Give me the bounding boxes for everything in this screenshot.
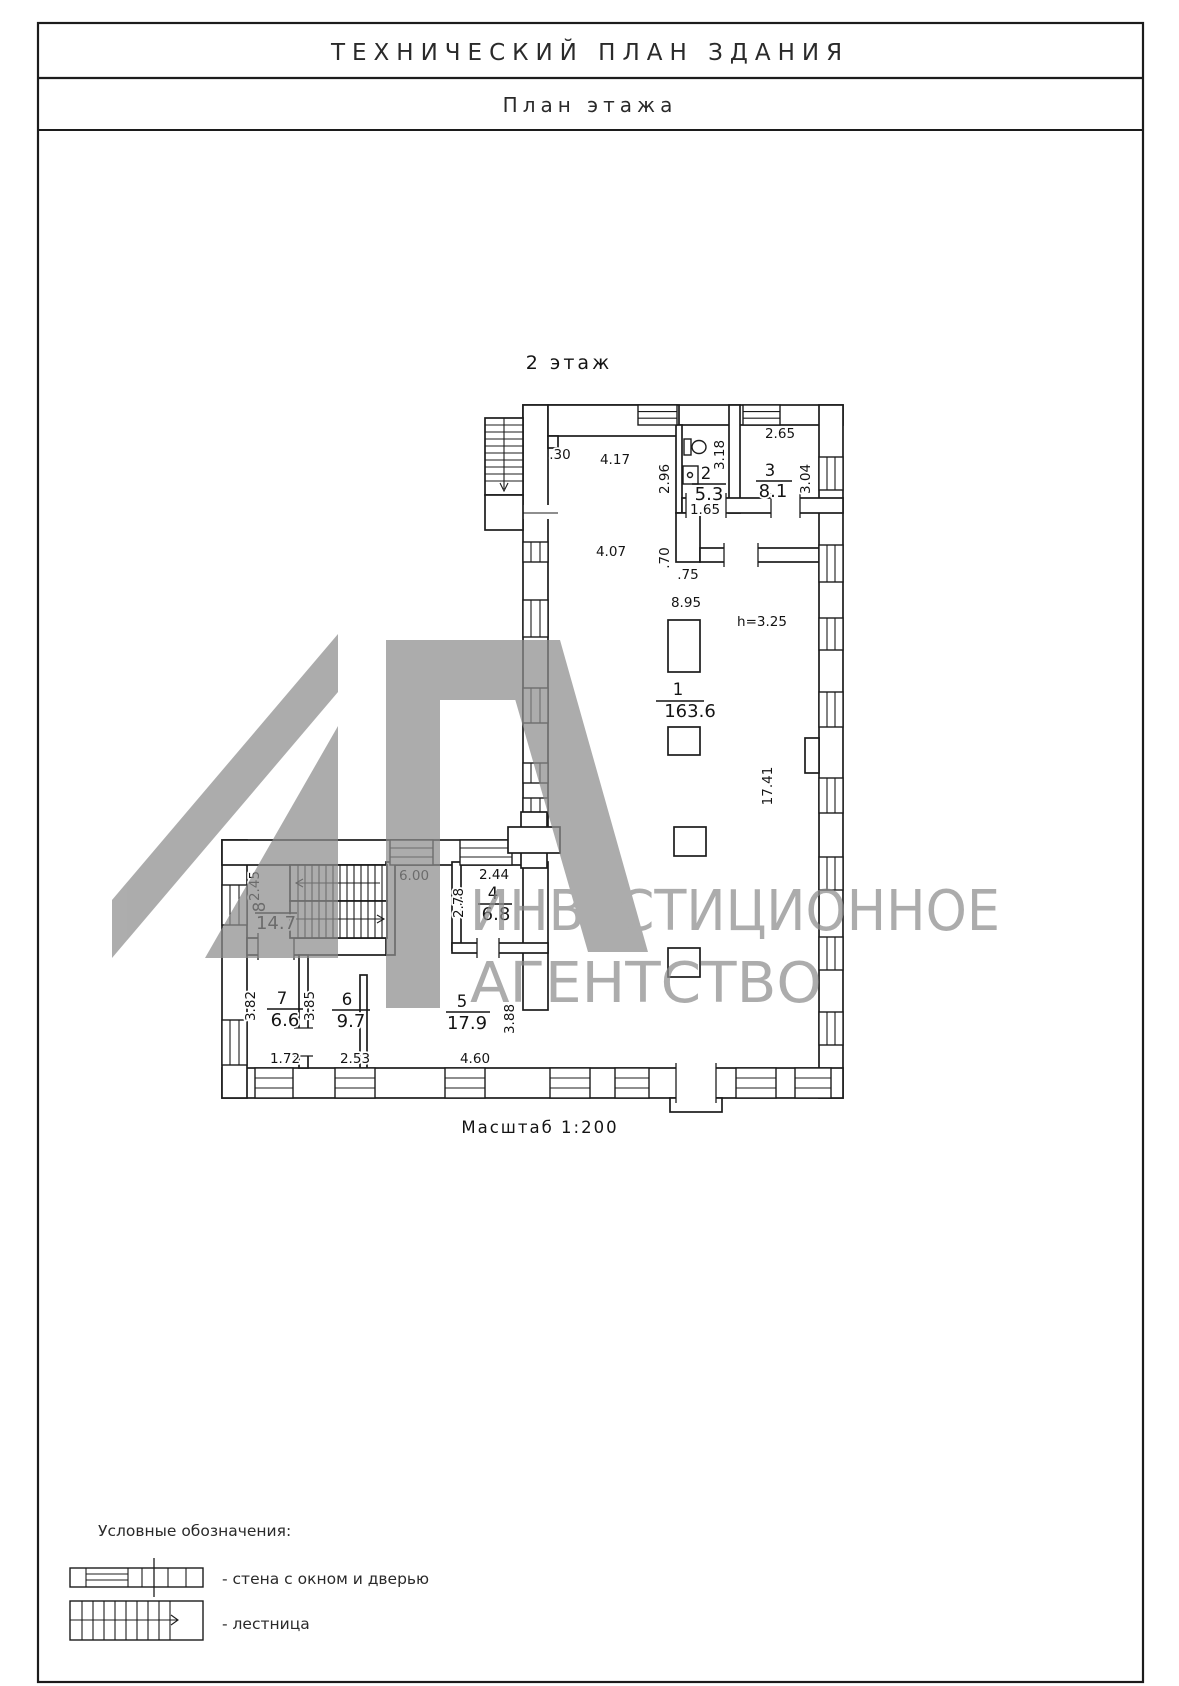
floor-label: 2 этаж [526,352,612,374]
toilet-icon [684,439,706,455]
dim-label: 1.65 [690,502,720,518]
pilaster-right [805,738,819,773]
window [819,545,843,582]
svg-text:1: 1 [673,680,684,699]
legend-symbol-wall-window-door [70,1558,203,1597]
wall-stub-vestibule [676,513,700,562]
watermark-text-line2: АГЕНТСТВО [470,951,822,1016]
svg-text:6: 6 [342,990,353,1009]
window [819,457,843,490]
svg-text:7: 7 [277,989,288,1008]
ceiling-height-note: h=3.25 [737,614,787,630]
page-title: ТЕХНИЧЕСКИЙ ПЛАН ЗДАНИЯ [330,38,849,66]
dim-label: 3.18 [712,440,728,470]
window [819,618,843,650]
wall-vestibule-south [700,548,819,562]
room-label-3: 38.1 [756,461,792,502]
window [736,1068,776,1098]
plan-sheet: ТЕХНИЧЕСКИЙ ПЛАН ЗДАНИЯ План этажа 2 эта… [0,0,1179,1686]
window [819,692,843,727]
dim-label: .70 [657,547,673,568]
svg-text:9.7: 9.7 [337,1011,366,1032]
dim-label: 2.53 [340,1051,370,1067]
dim-label: .30 [549,447,570,463]
dim-label: 4.07 [596,544,626,560]
svg-text:3: 3 [765,461,776,480]
window [615,1068,649,1098]
page-subtitle: План этажа [503,93,678,117]
svg-text:6.6: 6.6 [271,1010,300,1031]
dim-label: 2.96 [657,464,673,494]
legend-symbol-stairs [70,1601,203,1640]
dim-label: 2.65 [765,426,795,442]
room-label-1: 1163.6 [656,680,716,722]
legend-item-stairs-label: - лестница [222,1615,310,1633]
dim-label: 3.82 [243,991,259,1021]
svg-text:8.1: 8.1 [759,481,788,502]
window [335,1068,375,1098]
dim-label: 4.60 [460,1051,490,1067]
column [674,827,706,856]
window [523,542,548,562]
external-staircase [485,418,523,530]
dim-label: 3.85 [302,991,318,1021]
room-label-7: 76.6 [267,989,303,1031]
dim-label: 8.95 [671,595,701,611]
svg-text:163.6: 163.6 [664,701,716,722]
window [819,778,843,813]
wall-room2-room3 [729,405,740,513]
scale-label: Масштаб 1:200 [461,1118,618,1137]
wall-room2-left [676,425,682,513]
window [550,1068,590,1098]
column [668,727,700,755]
dim-label: 1.72 [270,1051,300,1067]
technical-plan-page: ТЕХНИЧЕСКИЙ ПЛАН ЗДАНИЯ План этажа 2 эта… [0,0,1179,1686]
window [255,1068,293,1098]
window [523,600,548,637]
svg-text:2: 2 [701,464,712,483]
dim-label: 2.78 [451,888,467,918]
dim-label: 17.41 [760,767,776,806]
watermark-text-line1: ИНВЕСТИЦИОННОЕ [470,879,1000,944]
svg-text:5: 5 [457,992,468,1011]
dim-label: .75 [677,567,698,583]
window [743,405,780,425]
legend-heading: Условные обозначения: [98,1522,291,1540]
column [668,620,700,672]
window [638,405,677,425]
svg-text:17.9: 17.9 [447,1013,487,1034]
legend-item-wall-label: - стена с окном и дверью [222,1570,429,1588]
window [795,1068,831,1098]
window [445,1068,485,1098]
dim-label: 3.04 [798,464,814,494]
window [819,1012,843,1045]
stair-landing [485,495,523,530]
window [460,840,512,865]
cross-column [508,827,560,853]
dim-label: 4.17 [600,452,630,468]
legend: Условные обозначения: - стена с окном и … [70,1522,429,1640]
sink-icon [683,466,698,484]
window [222,1020,247,1065]
